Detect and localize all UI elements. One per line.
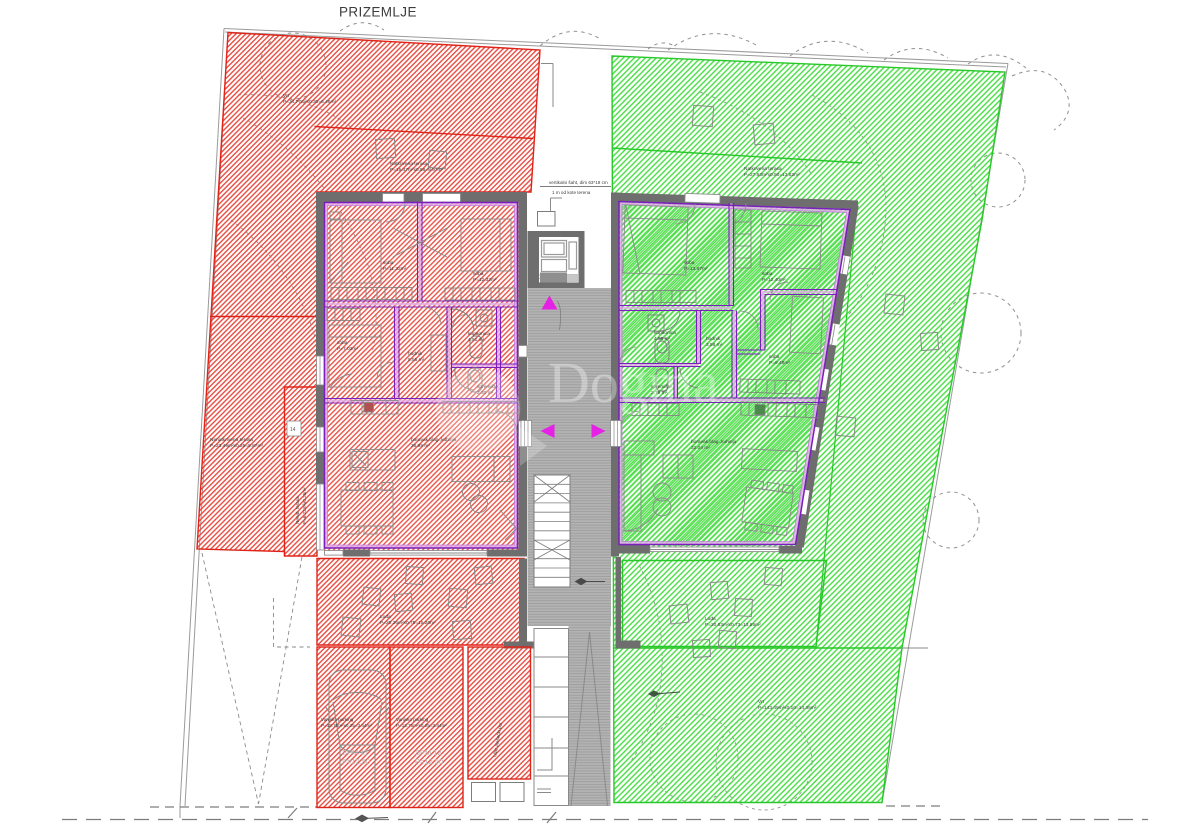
svg-text:P=7.03m²: P=7.03m² xyxy=(337,346,358,352)
svg-text:Natkrivena terasa: Natkrivena terasa xyxy=(744,166,782,172)
svg-text:32.04 m²: 32.04 m² xyxy=(691,445,710,451)
svg-text:P=9.48m²: P=9.48m² xyxy=(769,360,790,366)
svg-text:1 m od kote terena: 1 m od kote terena xyxy=(552,190,591,195)
svg-text:soba: soba xyxy=(337,340,348,346)
svg-text:Nenatkrivena terasa: Nenatkrivena terasa xyxy=(210,437,253,443)
svg-text:P=12.50: P=12.50 xyxy=(415,757,443,766)
svg-text:SPM 11: SPM 11 xyxy=(342,748,368,757)
svg-text:soba: soba xyxy=(769,354,780,360)
svg-text:Natkrivena terasa: Natkrivena terasa xyxy=(390,161,428,167)
svg-text:4.51 m²: 4.51 m² xyxy=(468,337,485,343)
svg-text:vertikalni šaht, dim 63*19 cm: vertikalni šaht, dim 63*19 cm xyxy=(549,180,608,185)
svg-text:P=12.50: P=12.50 xyxy=(342,757,370,766)
svg-text:soba: soba xyxy=(684,260,695,266)
svg-text:5.55 m²: 5.55 m² xyxy=(408,357,425,363)
svg-text:soba: soba xyxy=(473,271,484,277)
svg-text:Lođa: Lođa xyxy=(380,614,391,620)
svg-text:Vrt: Vrt xyxy=(283,93,290,99)
svg-text:hodnik: hodnik xyxy=(408,351,423,357)
svg-text:14: 14 xyxy=(290,427,296,433)
svg-text:kupaonica: kupaonica xyxy=(654,330,676,336)
svg-text:PRIZEMLJE: PRIZEMLJE xyxy=(339,5,417,20)
svg-text:Nenat. terasa: Nenat. terasa xyxy=(295,496,300,524)
svg-text:boravak,blag.,kuhinja: boravak,blag.,kuhinja xyxy=(691,439,737,445)
svg-text:P=143.49m²x0.10=14.35m²: P=143.49m²x0.10=14.35m² xyxy=(758,705,817,711)
svg-text:Vanjsko parking: Vanjsko parking xyxy=(396,717,429,722)
svg-text:soba: soba xyxy=(383,260,394,266)
svg-text:P=13.75m²x0.25=3.44m²: P=13.75m²x0.25=3.44m² xyxy=(396,723,447,728)
svg-text:P=34.77m²x0.30=5.46m²: P=34.77m²x0.30=5.46m² xyxy=(283,99,336,105)
svg-text:Vanjsko parking: Vanjsko parking xyxy=(321,717,354,722)
svg-text:P=15.47m²x0.58=8.97m²: P=15.47m²x0.58=8.97m² xyxy=(390,167,443,173)
svg-text:P=27.63m²x0.50=13.82m²: P=27.63m²x0.50=13.82m² xyxy=(744,172,800,178)
svg-text:Dogma: Dogma xyxy=(548,350,719,415)
svg-text:P=6.22m²x0.25m²: P=6.22m²x0.25m² xyxy=(302,487,307,524)
svg-text:36.95 m²: 36.95 m² xyxy=(411,443,430,449)
svg-text:P=12.40m²: P=12.40m² xyxy=(762,277,786,283)
svg-text:Vrt: Vrt xyxy=(758,699,765,705)
svg-text:kupaonica: kupaonica xyxy=(468,331,490,337)
svg-text:P=11.32m²: P=11.32m² xyxy=(383,266,407,272)
svg-text:P=12.32m²: P=12.32m² xyxy=(473,277,497,283)
svg-text:4.58 m²: 4.58 m² xyxy=(654,336,671,342)
svg-text:soba: soba xyxy=(762,271,773,277)
svg-text:3.58 m²: 3.58 m² xyxy=(706,342,723,348)
svg-text:P=20.83m²x0.73=13.85m²: P=20.83m²x0.73=13.85m² xyxy=(705,622,761,628)
svg-text:hodnik: hodnik xyxy=(706,336,721,342)
svg-text:P=13.75m²x0.25=3.44m²: P=13.75m²x0.25=3.44m² xyxy=(321,723,372,728)
svg-text:Lođa: Lođa xyxy=(705,616,716,622)
svg-text:P=13.97m²: P=13.97m² xyxy=(684,266,708,272)
svg-text:SPM 12: SPM 12 xyxy=(415,748,442,757)
svg-text:P=20.26m²x0.75=15.20m²: P=20.26m²x0.75=15.20m² xyxy=(380,620,436,626)
svg-text:P=23.49m²x0.25=5.87m²: P=23.49m²x0.25=5.87m² xyxy=(210,443,263,449)
